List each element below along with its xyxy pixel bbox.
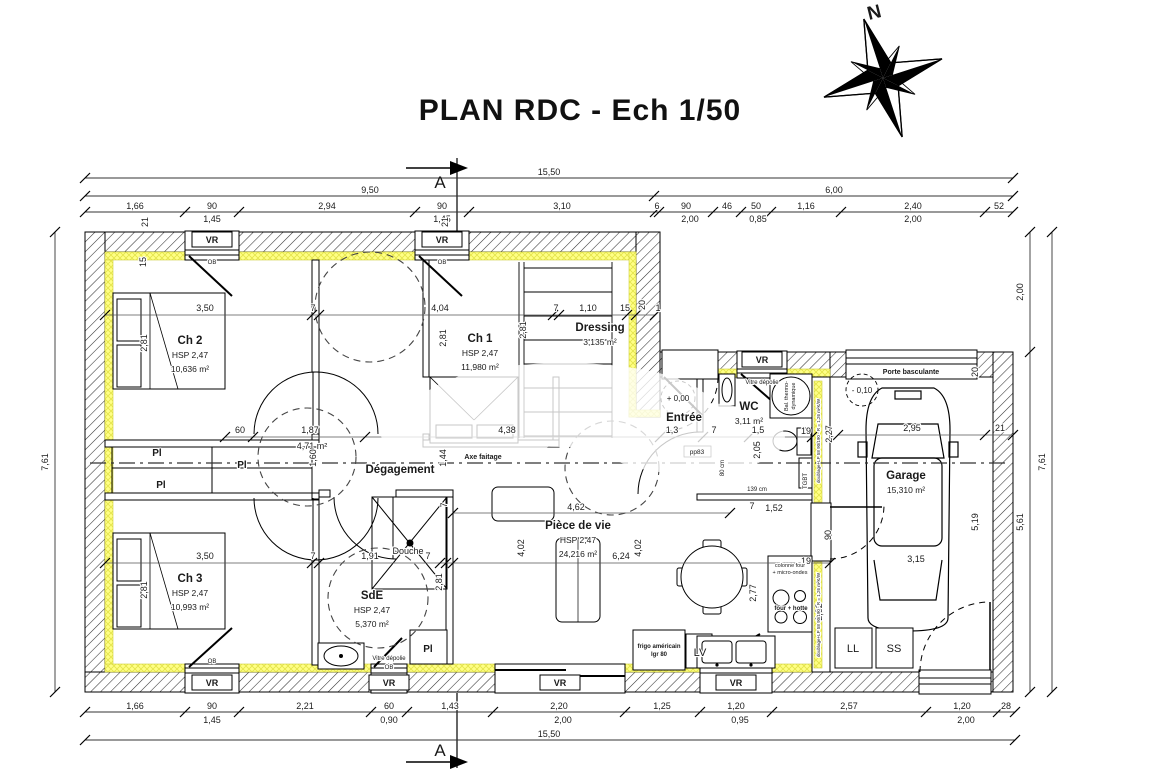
- dim-label: 7: [439, 502, 449, 507]
- feature-label: four + hotte: [774, 606, 808, 612]
- feature-label: OB: [385, 665, 394, 671]
- feature-label: OB: [208, 260, 217, 266]
- dim-label: 90: [681, 201, 691, 211]
- dim-label: 0,95: [731, 715, 749, 725]
- feature-label: LV: [694, 647, 707, 659]
- dim-label: 1,91: [361, 551, 379, 561]
- garage-side-door-arc: [920, 602, 990, 672]
- dim-label: 52: [994, 201, 1004, 211]
- feature-label: SS: [887, 643, 902, 655]
- feature-label: Pl: [156, 480, 166, 491]
- feature-label: VR: [554, 678, 567, 688]
- dim-label: 7: [749, 501, 754, 511]
- dim-label: 7: [310, 551, 315, 561]
- north-arrow: [805, 0, 961, 156]
- section-marker-top: A: [434, 173, 446, 192]
- dim-label: 1,16: [797, 201, 815, 211]
- dim-label: 1,5: [752, 425, 765, 435]
- dim-label: 90: [207, 701, 217, 711]
- dim-label: 2,77: [748, 584, 758, 602]
- dim-label: 20: [970, 367, 980, 377]
- feature-label: frigo américain: [637, 644, 680, 650]
- feature-label: Bal. thermo-: [784, 381, 790, 411]
- dim-label: 7: [711, 425, 716, 435]
- dim-label: 2,00: [554, 715, 572, 725]
- dim-label: 2,94: [318, 201, 336, 211]
- dim-label: 80 cm: [720, 460, 726, 476]
- dim-label: 6,00: [825, 185, 843, 195]
- door-arc-hall-ch1: [316, 372, 378, 434]
- room-hsp-label: HSP 2,47: [354, 605, 391, 615]
- room-area-label: 5,370 m²: [355, 619, 389, 629]
- dim-label: 0,90: [380, 715, 398, 725]
- dim-label: 2,95: [903, 423, 921, 433]
- feature-label: Vitre dépolie: [745, 380, 779, 386]
- feature-label: lgr 80: [651, 652, 668, 658]
- room-label: Ch 2: [178, 335, 203, 347]
- room-label: Ch 1: [468, 333, 494, 345]
- feature-label: doublage+LP 58 90/190 - R = 1,26 m²K/W: [816, 398, 821, 483]
- dim-label: 2,57: [840, 701, 858, 711]
- dim-label: 21: [440, 217, 450, 227]
- feature-label: Pl: [152, 448, 162, 459]
- dim-label: 2,00: [1015, 283, 1025, 301]
- dim-label: 1,44: [438, 449, 448, 467]
- dim-label: 4,62: [567, 502, 585, 512]
- dim-label: 9,50: [361, 185, 379, 195]
- feature-label: - 0,10: [852, 386, 873, 395]
- dining-table: [677, 540, 747, 614]
- dim-label: 90: [207, 201, 217, 211]
- feature-label: Porte basculante: [883, 369, 940, 376]
- dim-label: 4,02: [633, 539, 643, 557]
- dim-label: 1: [655, 303, 660, 313]
- dim-label: 3,15: [907, 554, 925, 564]
- dim-label: 1,45: [203, 715, 221, 725]
- garage-access-door: [811, 503, 884, 561]
- dim-label: 1,3: [666, 425, 679, 435]
- dim-label: 3,10: [553, 201, 571, 211]
- room-hsp-label: HSP 2,47: [560, 535, 597, 545]
- room-area-label: 11,980 m²: [461, 362, 499, 372]
- dim-label: 4,02: [516, 539, 526, 557]
- dim-label: 1,20: [953, 701, 971, 711]
- feature-label: VR: [756, 355, 769, 365]
- page-title: PLAN RDC - Ech 1/50: [280, 94, 880, 128]
- dim-label: 2,81: [139, 581, 149, 599]
- dim-label: 20: [637, 300, 647, 310]
- section-marker-bottom: A: [434, 741, 446, 760]
- feature-label: Vitre dépolie: [372, 656, 406, 662]
- feature-label: OB: [438, 260, 447, 266]
- feature-label: VR: [730, 678, 743, 688]
- feature-label: colonne four: [775, 563, 805, 569]
- dim-label: 2,81: [434, 573, 444, 591]
- dim-label: 2,00: [957, 715, 975, 725]
- dim-label: 1,25: [653, 701, 671, 711]
- dim-label: 2,05: [752, 441, 762, 459]
- feature-label: VR: [436, 235, 449, 245]
- room-label: WC: [739, 401, 758, 413]
- dim-label: 1,20: [727, 701, 745, 711]
- dim-label: 60: [235, 425, 245, 435]
- feature-label: VR: [383, 678, 396, 688]
- room-label: Dressing: [575, 322, 624, 334]
- feature-label: + 0,00: [667, 394, 690, 403]
- dim-label: 1,52: [765, 503, 783, 513]
- room-label: Dégagement: [365, 464, 434, 476]
- feature-label: Pl: [423, 644, 433, 655]
- room-area-label: 24,216 m²: [559, 549, 597, 559]
- room-hsp-label: HSP 2,47: [172, 350, 209, 360]
- dim-label: 3,50: [196, 551, 214, 561]
- dim-label: 7,61: [1037, 453, 1047, 471]
- north-label: N: [865, 1, 883, 25]
- dim-label: 7,61: [40, 453, 50, 471]
- dim-label: 15: [620, 303, 630, 313]
- dim-label: 1,43: [441, 701, 459, 711]
- sde-sink: [318, 643, 364, 669]
- dim-label: 1,87: [301, 425, 319, 435]
- dim-label: 46: [722, 201, 732, 211]
- dim-label: 1,60: [308, 449, 318, 467]
- feature-label: OB: [208, 659, 217, 665]
- dim-label: 28: [1001, 701, 1011, 711]
- dim-label: 4,04: [431, 303, 449, 313]
- feature-label: VR: [206, 235, 219, 245]
- feature-label: Pl: [237, 460, 247, 471]
- dim-label: 5,61: [1015, 513, 1025, 531]
- dim-label: 7: [553, 303, 558, 313]
- hall-closets: [112, 447, 312, 493]
- dim-label: 21: [995, 423, 1005, 433]
- dim-label: 6: [654, 201, 659, 211]
- dim-label: 7: [310, 303, 315, 313]
- room-area-label: 10,636 m²: [171, 364, 209, 374]
- dim-label: 15: [138, 257, 148, 267]
- wc-basin: [719, 374, 735, 406]
- dim-label: 6,24: [612, 551, 630, 561]
- dim-label: 1,66: [126, 201, 144, 211]
- dim-label: 2,27: [824, 425, 834, 443]
- dim-label: 90: [823, 530, 833, 540]
- dim-label: 4,38: [498, 425, 516, 435]
- dim-label: 15,50: [538, 729, 561, 739]
- door-arc-ch3: [254, 498, 316, 560]
- dim-label: 2,00: [904, 214, 922, 224]
- dim-label: 50: [751, 201, 761, 211]
- dim-label: 2,21: [296, 701, 314, 711]
- feature-label: pp83: [690, 449, 705, 456]
- dim-label: 2,81: [518, 321, 528, 339]
- dim-label: 2,00: [681, 214, 699, 224]
- dim-label: 2,81: [438, 329, 448, 347]
- room-label: Ch 3: [178, 573, 203, 585]
- dim-label: 2,81: [139, 334, 149, 352]
- room-hsp-label: HSP 2,47: [172, 588, 209, 598]
- dim-label: 3,50: [196, 303, 214, 313]
- dim-label: 19: [801, 426, 811, 436]
- bed-ch3: [113, 533, 225, 629]
- room-area-label: 3,135 m²: [583, 337, 617, 347]
- dim-label: 1,66: [126, 701, 144, 711]
- feature-label: Douche: [392, 546, 423, 556]
- dim-label: 60: [384, 701, 394, 711]
- feature-label: VR: [206, 678, 219, 688]
- garage-side-door: [919, 670, 991, 694]
- dim-label: 0,85: [749, 214, 767, 224]
- dim-label: 139 cm: [747, 487, 767, 493]
- dim-label: 5,19: [970, 513, 980, 531]
- dim-label: 15,50: [538, 167, 561, 177]
- room-label: SdE: [361, 590, 384, 602]
- room-label: Garage: [886, 470, 926, 482]
- dim-label: 1,10: [579, 303, 597, 313]
- dim-label: 7: [425, 551, 430, 561]
- feature-label: LL: [847, 643, 859, 655]
- floor-plan-page: PLAN RDC - Ech 1/50: [0, 0, 1163, 781]
- dim-label: 2,20: [550, 701, 568, 711]
- feature-label: Axe faitage: [464, 454, 501, 461]
- dim-label: 2,40: [904, 201, 922, 211]
- dim-label: 90: [437, 201, 447, 211]
- dim-label: 21: [140, 217, 150, 227]
- feature-label: doublage+LP 58 90/190 - R = 1,26 m²K/W: [816, 572, 821, 657]
- room-area-label: 15,310 m²: [887, 485, 925, 495]
- room-hsp-label: HSP 2,47: [462, 348, 499, 358]
- room-label: Pièce de vie: [545, 520, 611, 532]
- dim-label: 1,45: [203, 214, 221, 224]
- room-area-label: 10,993 m²: [171, 602, 209, 612]
- room-label: Entrée: [666, 412, 702, 424]
- feature-label: TGBT: [803, 473, 809, 489]
- feature-label: dynamique: [791, 383, 797, 410]
- feature-label: + micro-ondes: [772, 570, 807, 576]
